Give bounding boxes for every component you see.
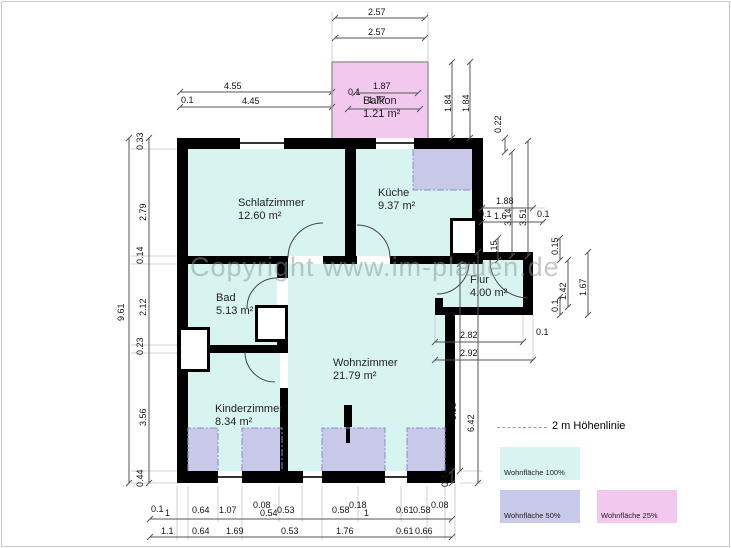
dimension-label: 2.82 [460, 331, 478, 340]
dimension-label: 0.44 [441, 469, 450, 487]
dimension-label: 0.1 [479, 210, 492, 219]
dimension-label: 1 [165, 509, 170, 518]
dimension-label: 1 [364, 509, 369, 518]
dimension-label: 0.1 [348, 88, 361, 97]
dimension-label: 1.42 [559, 282, 568, 300]
room-label-schlafzimmer: Schlafzimmer12.60 m² [238, 197, 305, 223]
dimension-label: 0.1 [537, 210, 550, 219]
dimension-label: 0.58 [413, 506, 431, 515]
dimension-label: 6.42 [467, 414, 476, 432]
dimension-label: 0.53 [277, 506, 295, 515]
dimension-label: 0.1 [181, 96, 194, 105]
dimension-label: 0.44 [136, 469, 145, 487]
dimension-label: 1.88 [496, 197, 514, 206]
dimension-label: 2.57 [368, 28, 386, 37]
dimension-label: 3.14 [504, 208, 513, 226]
hoehenlinie-dash [322, 428, 385, 471]
plan-line-overlay [0, 0, 731, 548]
dimension-label: 0.58 [332, 506, 350, 515]
dimension-label: 1.07 [219, 506, 237, 515]
dimension-label: 0.1 [536, 328, 549, 337]
dimension-label: 0.08 [431, 501, 449, 510]
dimension-label: 0.14 [136, 246, 145, 264]
floor-plan: Schlafzimmer12.60 m²Küche9.37 m²Bad5.13 … [0, 0, 731, 548]
dimension-label: 1.69 [226, 527, 244, 536]
dimension-label: 0.53 [281, 527, 299, 536]
dimension-label: 1.76 [336, 527, 354, 536]
dimension-label: 0.1 [551, 299, 560, 312]
room-label-kinderzimmer: Kinderzimmer8.34 m² [215, 403, 283, 429]
dimension-label: 1.84 [444, 94, 453, 112]
dimension-label: 0.61 [396, 527, 414, 536]
dimension-label: 1.1 [161, 527, 174, 536]
dimension-label: 5.98 [449, 402, 458, 420]
dimension-label: 3.51 [519, 208, 528, 226]
dimension-label: 0.23 [136, 337, 145, 355]
hoehenlinie-dash [188, 428, 218, 471]
dimension-label: 0.64 [192, 527, 210, 536]
dimension-label: 0.66 [415, 527, 433, 536]
dimension-label: 2.79 [139, 203, 148, 221]
dimension-label: 1.87 [373, 82, 391, 91]
room-label-wohnzimmer: Wohnzimmer21.79 m² [333, 357, 398, 383]
dimension-label: 2.92 [460, 349, 478, 358]
door-swing-arc [357, 225, 390, 258]
door-swing-arc [288, 223, 323, 258]
dimension-label: 0.54 [260, 509, 278, 518]
dimension-label: 1.84 [462, 94, 471, 112]
dimension-label: 0.1 [151, 505, 164, 514]
dimension-label: 1.67 [579, 278, 588, 296]
dimension-label: 0.61 [396, 506, 414, 515]
dimension-label: 4.45 [242, 97, 260, 106]
hoehenlinie-dash [413, 149, 472, 190]
dimension-label: 0.22 [494, 115, 503, 133]
dimension-label: 0.33 [136, 132, 145, 150]
dimension-label: 1.77 [368, 96, 386, 105]
dimension-label: 0.15 [490, 240, 499, 258]
door-swing-arc [437, 262, 469, 294]
dimension-label: 9.61 [117, 303, 126, 321]
hoehenlinie-dash [242, 428, 282, 471]
dimension-label: 0.15 [551, 237, 560, 255]
door-swing-arc [245, 352, 275, 382]
room-label-bad: Bad5.13 m² [216, 292, 253, 318]
hoehenlinie-dash [407, 428, 445, 471]
dimension-label: 4.55 [224, 82, 242, 91]
dimension-label: 0.64 [192, 506, 210, 515]
room-label-kche: Küche9.37 m² [378, 187, 415, 213]
dimension-label: 3.56 [139, 408, 148, 426]
dimension-label: 2.57 [368, 8, 386, 17]
room-label-flur: Flur4.00 m² [470, 274, 507, 300]
dimension-label: 2.12 [139, 298, 148, 316]
